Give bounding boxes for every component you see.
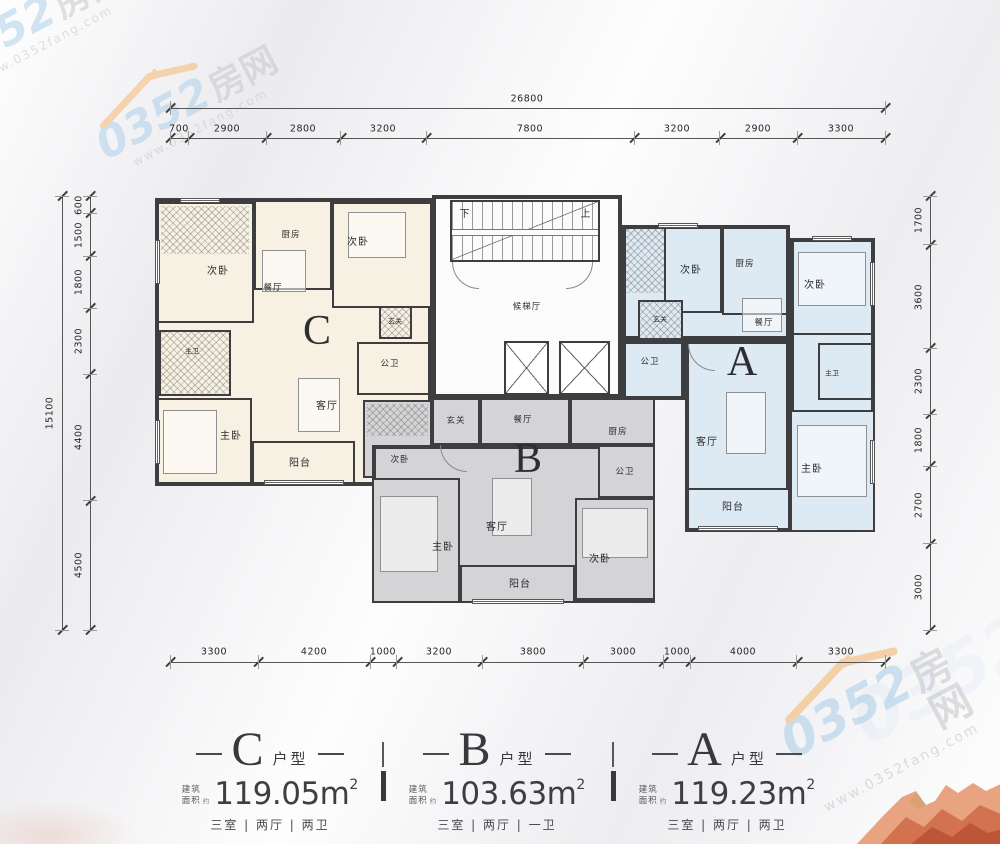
- dash-icon: [652, 753, 678, 755]
- legend-area-sup: 2: [806, 777, 815, 793]
- floor-plan-page: 0352房网 www.0352fang.com 0352房网 www.0352f…: [0, 0, 1000, 844]
- room-label-balcony: 阳台: [289, 459, 311, 469]
- dim-label: 2800: [290, 124, 316, 135]
- room-label-public-bath: 公卫: [615, 468, 634, 477]
- legend-area: 建筑面积约 119.23m2: [612, 777, 842, 811]
- dim-line-top-segments: [170, 138, 885, 139]
- dim-label: 2900: [745, 124, 771, 135]
- room-label-kitchen: 厨房: [608, 428, 627, 437]
- roof-swoosh-icon: [0, 0, 52, 46]
- dim-label: 3000: [610, 647, 636, 658]
- legend-area-value: 119.23m: [671, 777, 806, 811]
- room-label-bedroom: 次卧: [390, 456, 409, 465]
- unit-letter-b: B: [514, 438, 542, 480]
- roof-swoosh-icon: [770, 629, 908, 724]
- dash-icon: [318, 753, 344, 755]
- legend-area: 建筑面积约 119.05m2: [155, 777, 385, 811]
- room-label-master-bath: 主卫: [825, 371, 839, 378]
- legend-area-sup: 2: [576, 777, 585, 793]
- dim-label: 3000: [914, 574, 925, 600]
- watermark-number: 0352: [0, 0, 63, 85]
- bed-icon: [797, 425, 867, 497]
- legend-letter: C: [231, 726, 263, 774]
- legend-area-sup: 2: [349, 777, 358, 793]
- dim-label: 3800: [520, 647, 546, 658]
- legend-area-label: 建筑面积约: [182, 785, 210, 807]
- legend-area-value: 103.63m: [441, 777, 576, 811]
- room-label-entry: 玄关: [388, 319, 402, 326]
- room-label-master-bedroom: 主卧: [432, 543, 454, 553]
- stair-up-label: 上: [581, 210, 592, 220]
- room-b-kitchen: [570, 398, 655, 445]
- dim-label: 3200: [664, 124, 690, 135]
- room-label-bedroom: 次卧: [804, 281, 826, 291]
- legend-area-label: 建筑面积约: [409, 785, 437, 807]
- window: [870, 440, 875, 484]
- brand-watermark-ghost: 0352房网: [841, 574, 1000, 807]
- legend-header: C 户型: [155, 726, 385, 774]
- window: [658, 223, 698, 228]
- room-label-kitchen: 厨房: [735, 260, 754, 269]
- elevator-shaft: [504, 341, 549, 395]
- window: [870, 262, 875, 306]
- room-label-public-bath: 公卫: [640, 358, 659, 367]
- table-icon: [726, 392, 766, 454]
- window: [264, 480, 344, 485]
- room-label-bedroom: 次卧: [680, 266, 702, 276]
- legend-unit-c: C 户型 建筑面积约 119.05m2 三室 | 两厅 | 两卫: [155, 726, 385, 833]
- dim-label: 3300: [828, 647, 854, 658]
- room-label-master-bedroom: 主卧: [801, 465, 823, 475]
- roof-swoosh-icon: [87, 47, 207, 130]
- legend-unit-a: A 户型 建筑面积约 119.23m2 三室 | 两厅 | 两卫: [612, 726, 842, 833]
- dim-label: 1500: [74, 222, 85, 248]
- dim-label: 1000: [370, 647, 396, 658]
- legend-room-count: 三室 | 两厅 | 一卫: [382, 816, 612, 833]
- legend-area-value: 119.05m: [214, 777, 349, 811]
- dim-label: 2300: [74, 328, 85, 354]
- dim-line-top-total: [170, 108, 885, 109]
- legend-room-count: 三室 | 两厅 | 两卫: [155, 816, 385, 833]
- dim-line-left-total: [62, 196, 63, 630]
- legend-header: A 户型: [612, 726, 842, 774]
- legend-suffix: 户型: [731, 748, 767, 769]
- closet-floor: [367, 404, 428, 436]
- dim-label-total-height: 15100: [45, 397, 56, 430]
- dim-label: 1800: [914, 427, 925, 453]
- room-label-bedroom: 次卧: [207, 267, 229, 277]
- dim-label: 3200: [426, 647, 452, 658]
- room-label-bedroom: 次卧: [589, 555, 611, 565]
- room-label-master-bedroom: 主卧: [220, 432, 242, 442]
- staircase: [450, 200, 600, 262]
- closet-floor: [626, 229, 664, 293]
- room-label-dining: 餐厅: [263, 284, 282, 293]
- dash-icon: [423, 753, 449, 755]
- room-label-living: 客厅: [486, 523, 508, 533]
- dim-label: 4400: [74, 424, 85, 450]
- window: [698, 526, 778, 531]
- dim-label: 700: [169, 124, 189, 135]
- watercolor-mountain: [838, 753, 1000, 844]
- dim-label: 7800: [517, 124, 543, 135]
- legend-area: 建筑面积约 103.63m2: [382, 777, 612, 811]
- dim-label: 2700: [914, 492, 925, 518]
- room-label-balcony: 阳台: [509, 580, 531, 590]
- room-label-kitchen: 厨房: [281, 231, 300, 240]
- legend-suffix: 户型: [500, 748, 536, 769]
- room-label-master-bath: 主卫: [185, 349, 199, 356]
- legend-suffix: 户型: [273, 748, 309, 769]
- window: [155, 420, 160, 464]
- dash-icon: [545, 753, 571, 755]
- dim-label: 4500: [74, 552, 85, 578]
- dash-icon: [776, 753, 802, 755]
- room-a-public-bath: [624, 342, 683, 398]
- dim-label-total-width: 26800: [511, 94, 544, 105]
- watermark-url: www.0352fang.com: [0, 0, 136, 97]
- unit-letter-a: A: [727, 341, 757, 383]
- dim-label: 3600: [914, 284, 925, 310]
- dim-label: 1700: [914, 207, 925, 233]
- stair-landing: [452, 229, 598, 237]
- legend-header: B 户型: [382, 726, 612, 774]
- closet-floor: [161, 206, 249, 254]
- dim-label: 4200: [301, 647, 327, 658]
- room-label-elevator-hall: 候梯厅: [513, 303, 542, 312]
- room-label-public-bath: 公卫: [380, 360, 399, 369]
- dim-label: 1800: [74, 269, 85, 295]
- window: [472, 599, 564, 604]
- dim-label: 1000: [664, 647, 690, 658]
- legend-letter: A: [687, 726, 722, 774]
- room-label-living: 客厅: [696, 438, 718, 448]
- dim-line-left-segments: [90, 196, 91, 630]
- dim-label: 600: [74, 195, 85, 215]
- dim-line-bottom: [170, 662, 885, 663]
- room-label-bedroom: 次卧: [347, 238, 369, 248]
- legend-area-label: 建筑面积约: [639, 785, 667, 807]
- bed-icon: [348, 212, 406, 258]
- window: [180, 198, 220, 203]
- room-label-entry: 玄关: [653, 317, 667, 324]
- unit-letter-c: C: [303, 310, 331, 352]
- dim-label: 2300: [914, 368, 925, 394]
- watermark-brand: 房网: [48, 0, 128, 25]
- room-label-dining: 餐厅: [754, 319, 773, 328]
- room-c-master-bath: [159, 330, 231, 396]
- bed-icon: [798, 252, 866, 306]
- stair-down-label: 下: [460, 210, 471, 220]
- legend-room-count: 三室 | 两厅 | 两卫: [612, 816, 842, 833]
- dim-label: 3300: [201, 647, 227, 658]
- dim-label: 4000: [730, 647, 756, 658]
- room-label-entry: 玄关: [446, 417, 465, 426]
- room-label-balcony: 阳台: [722, 503, 744, 513]
- bed-icon: [582, 508, 648, 558]
- window: [155, 240, 160, 284]
- dim-label: 2900: [214, 124, 240, 135]
- paint-smudge: [0, 800, 140, 844]
- dim-label: 3200: [370, 124, 396, 135]
- brand-watermark: 0352房网 www.0352fang.com: [0, 0, 136, 97]
- dash-icon: [196, 753, 222, 755]
- bed-icon: [163, 410, 217, 474]
- room-label-dining: 餐厅: [513, 416, 532, 425]
- room-label-living: 客厅: [316, 402, 338, 412]
- elevator-shaft: [559, 341, 610, 395]
- window: [812, 236, 852, 241]
- legend-unit-b: B 户型 建筑面积约 103.63m2 三室 | 两厅 | 一卫: [382, 726, 612, 833]
- dim-label: 3300: [828, 124, 854, 135]
- legend-letter: B: [458, 726, 490, 774]
- bed-icon: [380, 496, 438, 572]
